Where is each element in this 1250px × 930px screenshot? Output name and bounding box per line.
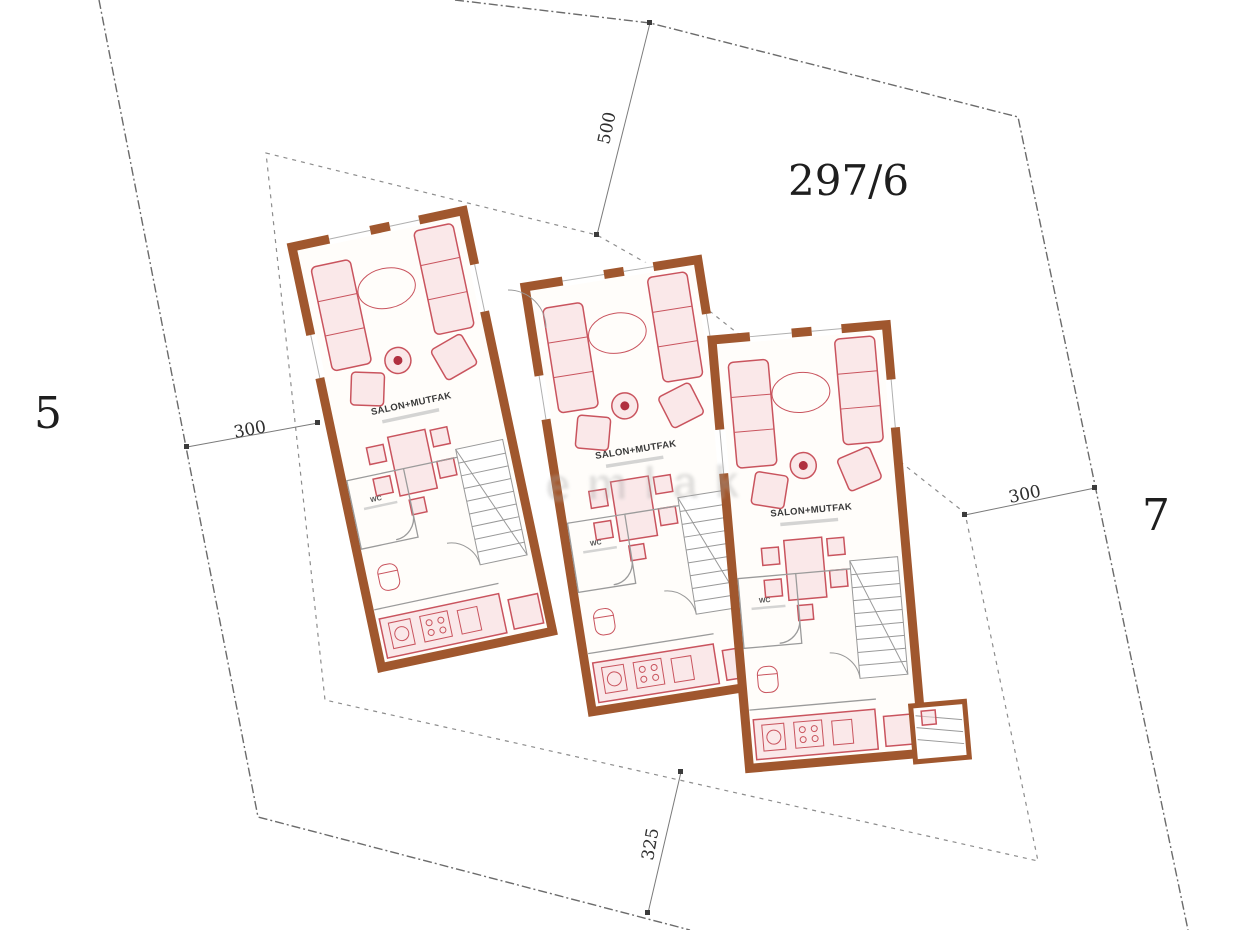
dimension-left-300: 300 <box>184 417 320 449</box>
watermark: emlak <box>545 455 756 511</box>
neighbor-plot-right: 7 <box>1142 490 1170 541</box>
site-plan-drawing: SALON+MUTFAK <box>0 0 1250 930</box>
dimension-bottom-325: 325 <box>638 769 683 915</box>
unit-1 <box>285 204 557 669</box>
dimension-right-300: 300 <box>962 482 1097 517</box>
parcel-label: 297/6 <box>788 156 909 205</box>
dim-top-label: 500 <box>594 110 620 146</box>
dim-bottom-label: 325 <box>638 826 663 861</box>
dim-left-label: 300 <box>232 417 268 443</box>
unit-3-porch <box>911 701 970 761</box>
unit-3 <box>706 319 929 769</box>
dim-right-label: 300 <box>1007 482 1043 508</box>
site-plan-canvas: SALON+MUTFAK <box>0 0 1250 930</box>
neighbor-plot-left: 5 <box>34 388 62 439</box>
dimension-top-500: 500 <box>594 20 652 237</box>
